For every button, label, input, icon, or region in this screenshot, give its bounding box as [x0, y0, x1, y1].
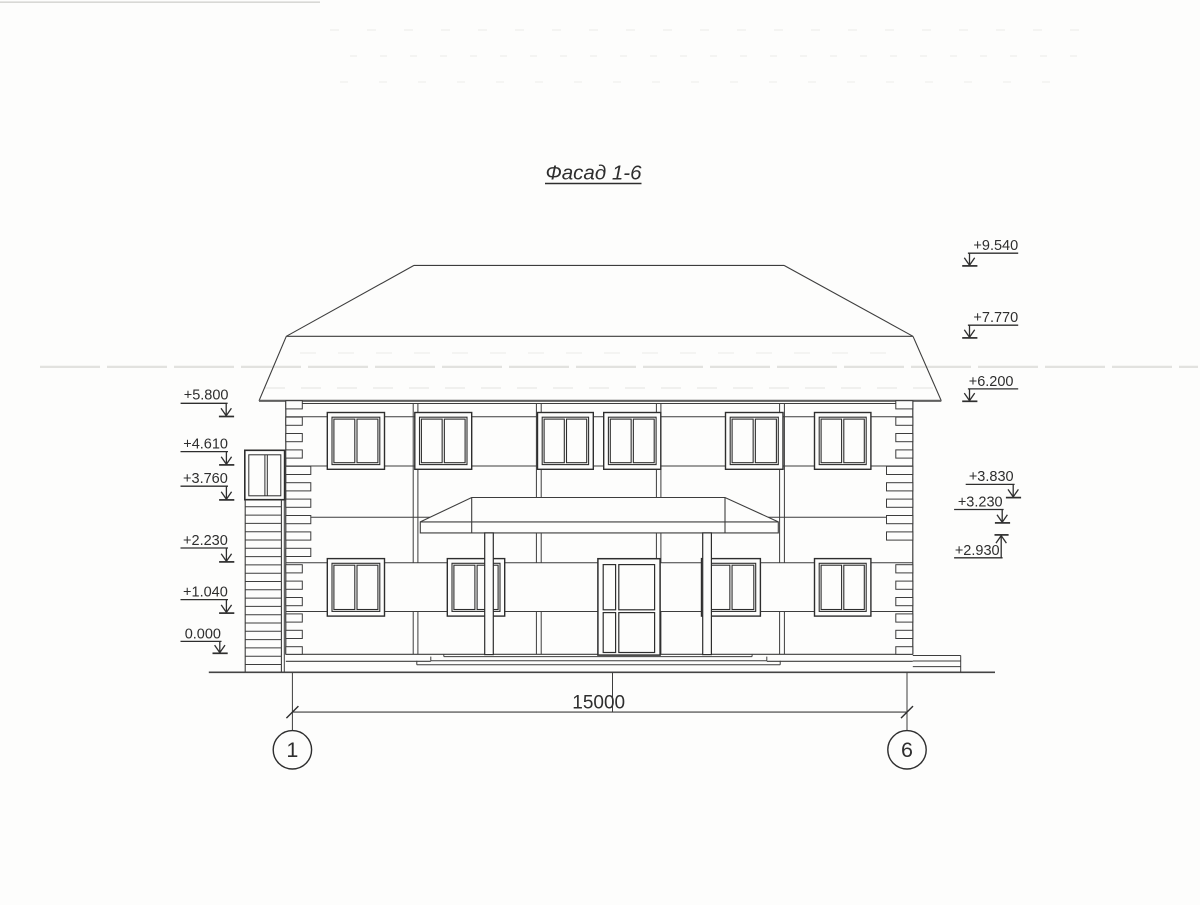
svg-text:+3.830: +3.830 [969, 469, 1014, 485]
svg-text:+4.610: +4.610 [183, 437, 228, 453]
svg-text:+3.230: +3.230 [958, 495, 1003, 511]
svg-text:6: 6 [901, 738, 913, 762]
svg-text:Фасад 1-6: Фасад 1-6 [545, 162, 642, 185]
svg-text:+3.760: +3.760 [183, 471, 228, 487]
svg-text:+2.230: +2.230 [183, 533, 228, 549]
svg-text:1: 1 [286, 738, 298, 762]
svg-text:+7.770: +7.770 [973, 310, 1018, 326]
svg-text:+5.800: +5.800 [184, 387, 229, 403]
svg-text:+1.040: +1.040 [183, 584, 228, 600]
svg-text:15000: 15000 [572, 693, 625, 714]
svg-text:+6.200: +6.200 [969, 374, 1014, 390]
svg-text:0.000: 0.000 [185, 626, 221, 642]
svg-text:+2.930: +2.930 [955, 543, 1000, 559]
svg-text:+9.540: +9.540 [973, 238, 1018, 254]
